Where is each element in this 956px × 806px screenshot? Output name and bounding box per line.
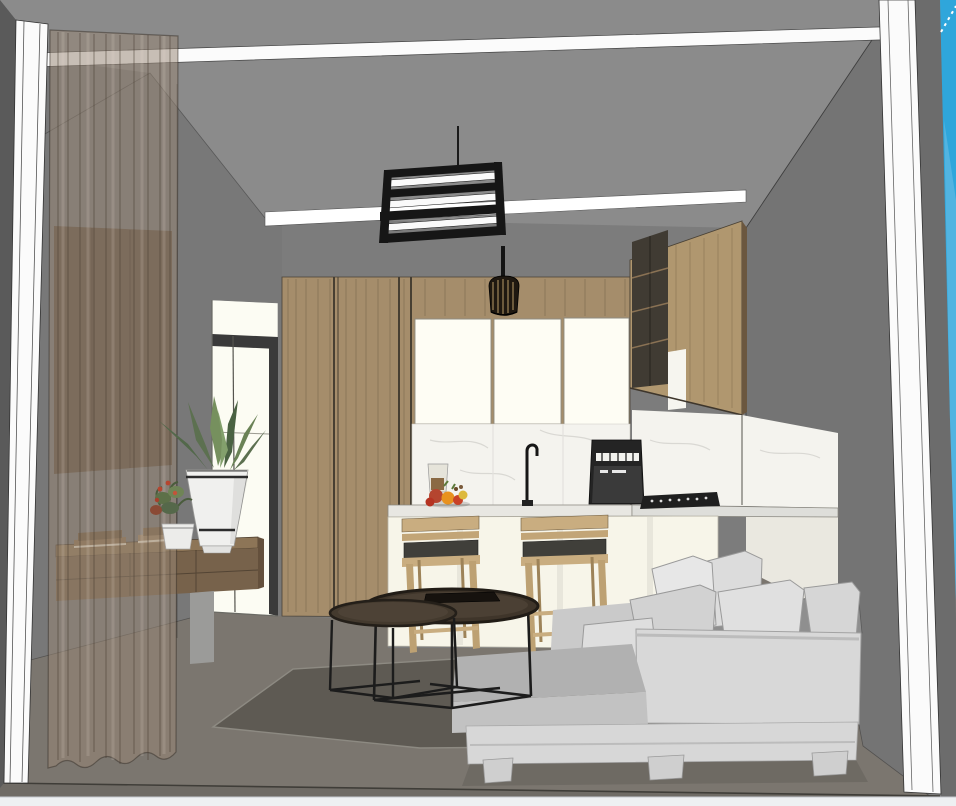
upper-cabinet-door — [494, 319, 561, 424]
upper-cabinet-door — [564, 318, 629, 425]
upper-cabinet-door — [415, 319, 491, 424]
sheer-curtain — [48, 30, 178, 768]
coffee-machine — [589, 440, 644, 504]
viewport-3d[interactable] — [0, 0, 956, 806]
door-frame-right — [269, 337, 278, 616]
console-side — [258, 537, 264, 589]
bottom-bar — [0, 797, 956, 806]
sofa-foot — [483, 758, 513, 783]
status-bar — [0, 797, 956, 806]
app-window — [0, 0, 956, 806]
table-tray — [424, 592, 500, 603]
sofa-foot — [812, 751, 848, 776]
right-cabinet-side — [742, 221, 747, 415]
sofa-armrest-front — [636, 629, 861, 724]
sofa-foot — [648, 755, 684, 780]
console-support — [190, 591, 214, 664]
